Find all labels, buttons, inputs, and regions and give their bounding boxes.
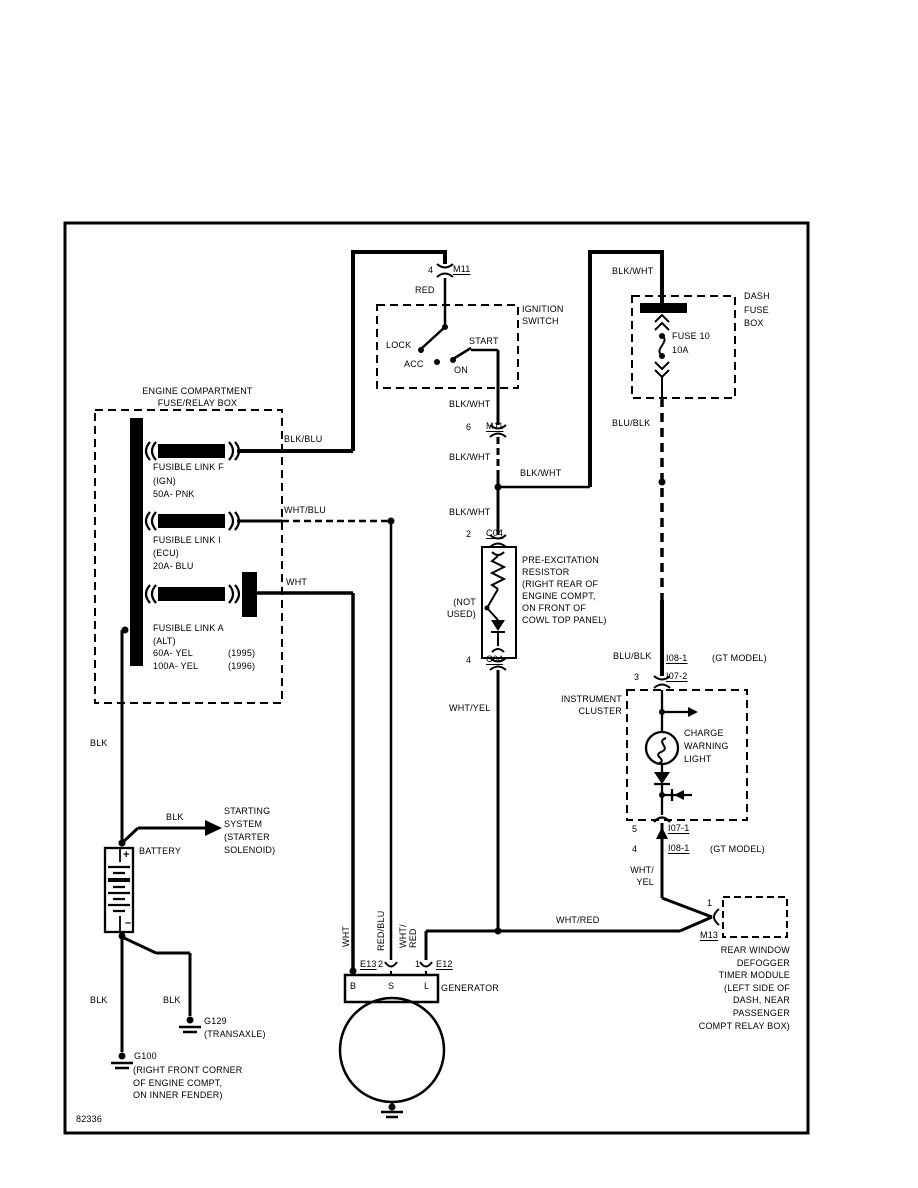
ignition-acc-label: ACC — [404, 358, 424, 370]
wire-wht-generator-b — [257, 593, 353, 968]
ignition-start-label: START — [469, 335, 499, 347]
fusible-link-a-icon — [146, 572, 257, 617]
wire-label-red: RED — [415, 284, 435, 296]
e13-connector-label: E13 — [360, 958, 377, 970]
i07-2-pin-number: 3 — [634, 671, 639, 683]
fusible-link-i-label: FUSIBLE LINK I (ECU) 20A- BLU — [153, 534, 221, 573]
dash-fuse-box-title: DASH FUSE BOX — [744, 290, 770, 331]
fusible-link-i-icon — [146, 512, 239, 530]
link-a-1995-year: (1995) — [228, 647, 255, 659]
fusible-link-f-label: FUSIBLE LINK F (IGN) 50A- PNK — [153, 461, 224, 502]
junction-dot — [495, 928, 502, 935]
link-a-1996-year: (1996) — [228, 660, 255, 672]
g129-label: G129 — [204, 1015, 227, 1027]
wire-label-wht: WHT — [286, 576, 307, 588]
generator-terminal-s: S — [388, 980, 394, 992]
not-used-label: (NOT USED) — [438, 596, 476, 620]
ignition-on-label: ON — [454, 364, 468, 376]
i07-1-arrow-icon — [656, 827, 668, 839]
wire-label-blk: BLK — [90, 737, 108, 749]
g100-ground-icon — [111, 1053, 133, 1069]
charge-warning-light-label: CHARGE WARNING LIGHT — [684, 727, 729, 766]
fuse10-amps: 10A — [672, 344, 689, 356]
gt-model-note: (GT MODEL) — [710, 843, 765, 855]
diagram-number: 82336 — [76, 1113, 102, 1125]
i08-1-connector-label: I08-1 — [668, 842, 690, 854]
generator-terminal-connectors-icon — [385, 962, 432, 975]
starting-system-label: STARTING SYSTEM (STARTER SOLENOID) — [224, 805, 275, 857]
wire-label-blu-blk: BLU/BLK — [613, 650, 651, 662]
generator-title: GENERATOR — [441, 982, 499, 994]
m11-pin4-connector-icon — [437, 264, 453, 277]
wire-label-blu-blk: BLU/BLK — [612, 417, 650, 429]
wire-label-wht-red-rot: WHT/ RED — [398, 924, 418, 948]
fuse10-label: FUSE 10 — [672, 330, 710, 342]
generator-s-pin-number: 2 — [378, 958, 383, 970]
wire-blk-wht-rail-right — [590, 252, 662, 487]
wire-label-blk-wht-branch: BLK/WHT — [520, 467, 561, 479]
engine-box-title: ENGINE COMPARTMENT FUSE/RELAY BOX — [120, 385, 275, 409]
m13-connector-label: M13 — [700, 929, 718, 941]
wire-label-wht-red: WHT/RED — [556, 914, 599, 926]
wire-label-blk-blu: BLK/BLU — [284, 433, 322, 445]
junction-dot — [659, 479, 666, 486]
resistor-icon — [485, 552, 506, 652]
battery-title: BATTERY — [139, 845, 181, 857]
wire-label-blk-wht: BLK/WHT — [449, 506, 490, 518]
bus-bar — [130, 418, 143, 666]
instrument-cluster-title: INSTRUMENT CLUSTER — [545, 693, 622, 717]
generator-body-icon — [340, 998, 444, 1102]
starter-arrow-icon — [205, 820, 222, 836]
i08-1-pin-number: 4 — [632, 843, 637, 855]
e12-connector-label: E12 — [436, 958, 453, 970]
m13-connector-icon — [714, 909, 719, 925]
i07-1-connector-label: I07-1 — [668, 822, 690, 834]
wire-label-blk: BLK — [90, 994, 108, 1006]
wire-label-blk-wht: BLK/WHT — [612, 265, 653, 277]
m11-connector-label: M11 — [453, 263, 470, 275]
defogger-module-label: REAR WINDOW DEFOGGER TIMER MODULE (LEFT … — [648, 944, 790, 1032]
wire-label-wht-rot: WHT — [341, 926, 351, 947]
m13-pin-number: 1 — [707, 897, 712, 909]
ignition-lock-label: LOCK — [386, 339, 411, 351]
wire-label-blk-wht: BLK/WHT — [449, 451, 490, 463]
wire-label-wht-yel: WHT/YEL — [449, 702, 490, 714]
generator-l-pin-number: 1 — [415, 958, 420, 970]
wire-blk-starter — [122, 828, 205, 843]
wire-label-blk-wht: BLK/WHT — [449, 398, 490, 410]
g100-label: G100 — [134, 1050, 157, 1062]
wire-label-blk: BLK — [166, 811, 184, 823]
c04-pin4-number: 4 — [466, 654, 471, 666]
c04-pin2-number: 2 — [466, 528, 471, 540]
wire-defogger-join — [662, 898, 712, 931]
i07-1-pin-number: 5 — [632, 823, 637, 835]
wire-label-wht-blu: WHT/BLU — [284, 504, 326, 516]
gt-model-note: (GT MODEL) — [712, 652, 767, 664]
m11-connector-label: M11 — [486, 420, 503, 432]
link-a-1996-rating: 100A- YEL — [153, 660, 198, 672]
generator-terminal-b: B — [350, 980, 356, 992]
c04-connector-label: C04 — [486, 527, 503, 539]
m11-pin4-number: 4 — [428, 264, 433, 276]
wire-label-red-blu-rot: RED/BLU — [376, 911, 386, 951]
c04-connector-label: C04 — [486, 653, 503, 665]
link-a-1995-rating: 60A- YEL — [153, 647, 193, 659]
i08-1-connector-label: I08-1 — [666, 652, 688, 664]
pre-excitation-resistor-label: PRE-EXCITATION RESISTOR (RIGHT REAR OF E… — [522, 554, 607, 626]
wire-label-wht-yel-wrap: WHT/ YEL — [622, 864, 654, 888]
generator-ground-icon — [381, 1102, 403, 1117]
defogger-module-outline — [723, 897, 787, 937]
wire-label-blk: BLK — [163, 994, 181, 1006]
fusible-link-f-icon — [146, 442, 239, 460]
wire-blk-blu-rail — [237, 252, 445, 451]
wiring-diagram-page: 4 M11 RED IGNITION SWITCH LOCK ACC START… — [0, 0, 918, 1188]
battery-plus-sign: + — [123, 849, 130, 861]
fusible-link-a-label: FUSIBLE LINK A (ALT) — [153, 622, 224, 648]
i07-2-connector-label: I07-2 — [666, 670, 688, 682]
g129-ground-icon — [179, 1017, 201, 1033]
g129-location: (TRANSAXLE) — [204, 1028, 266, 1040]
g100-location: (RIGHT FRONT CORNER OF ENGINE COMPT, ON … — [133, 1064, 242, 1102]
generator-terminal-l: L — [424, 980, 429, 992]
m11-pin6-number: 6 — [466, 421, 471, 433]
ignition-switch-title: IGNITION SWITCH — [522, 303, 564, 327]
battery-minus-sign: – — [125, 917, 131, 929]
